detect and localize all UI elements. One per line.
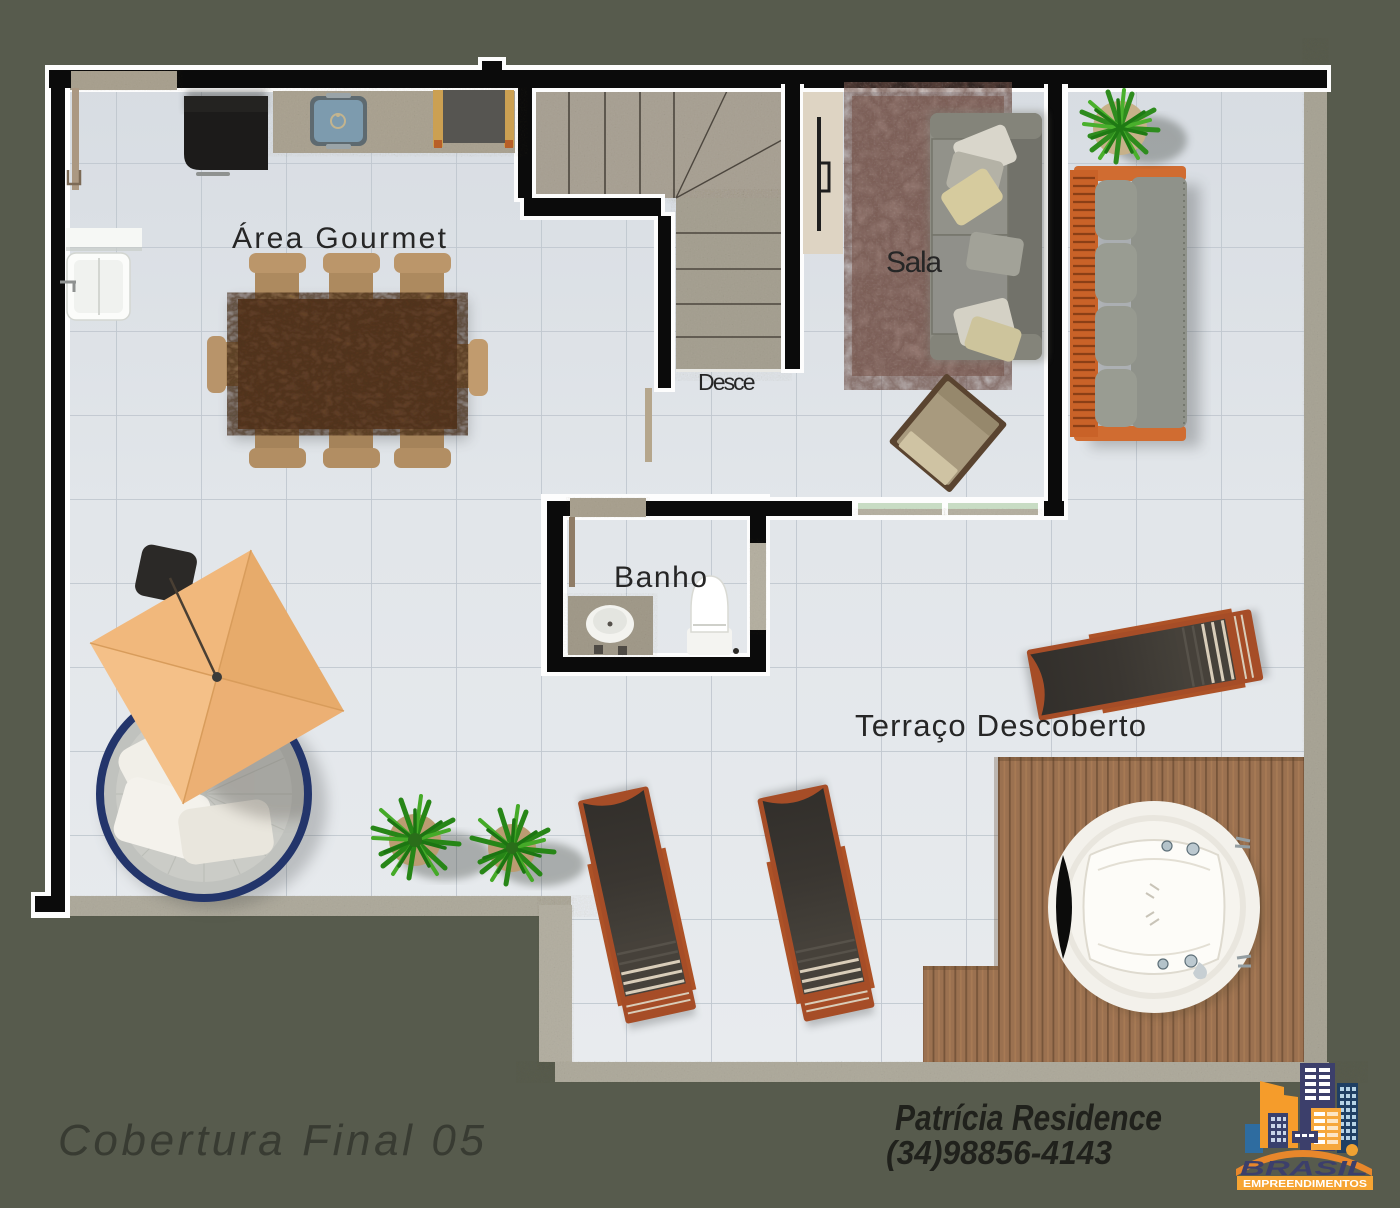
svg-text:Sala: Sala [886, 246, 943, 279]
svg-text:Terraço Descoberto: Terraço Descoberto [855, 708, 1147, 743]
svg-text:(34)98856-4143: (34)98856-4143 [886, 1134, 1112, 1171]
svg-text:EMPREENDIMENTOS: EMPREENDIMENTOS [1243, 1179, 1367, 1190]
svg-text:Cobertura Final 05: Cobertura Final 05 [58, 1116, 485, 1165]
svg-text:Patrícia Residence: Patrícia Residence [895, 1097, 1162, 1138]
svg-text:Banho: Banho [614, 561, 708, 594]
svg-text:Área Gourmet: Área Gourmet [232, 222, 447, 255]
svg-text:Desce: Desce [698, 369, 756, 395]
